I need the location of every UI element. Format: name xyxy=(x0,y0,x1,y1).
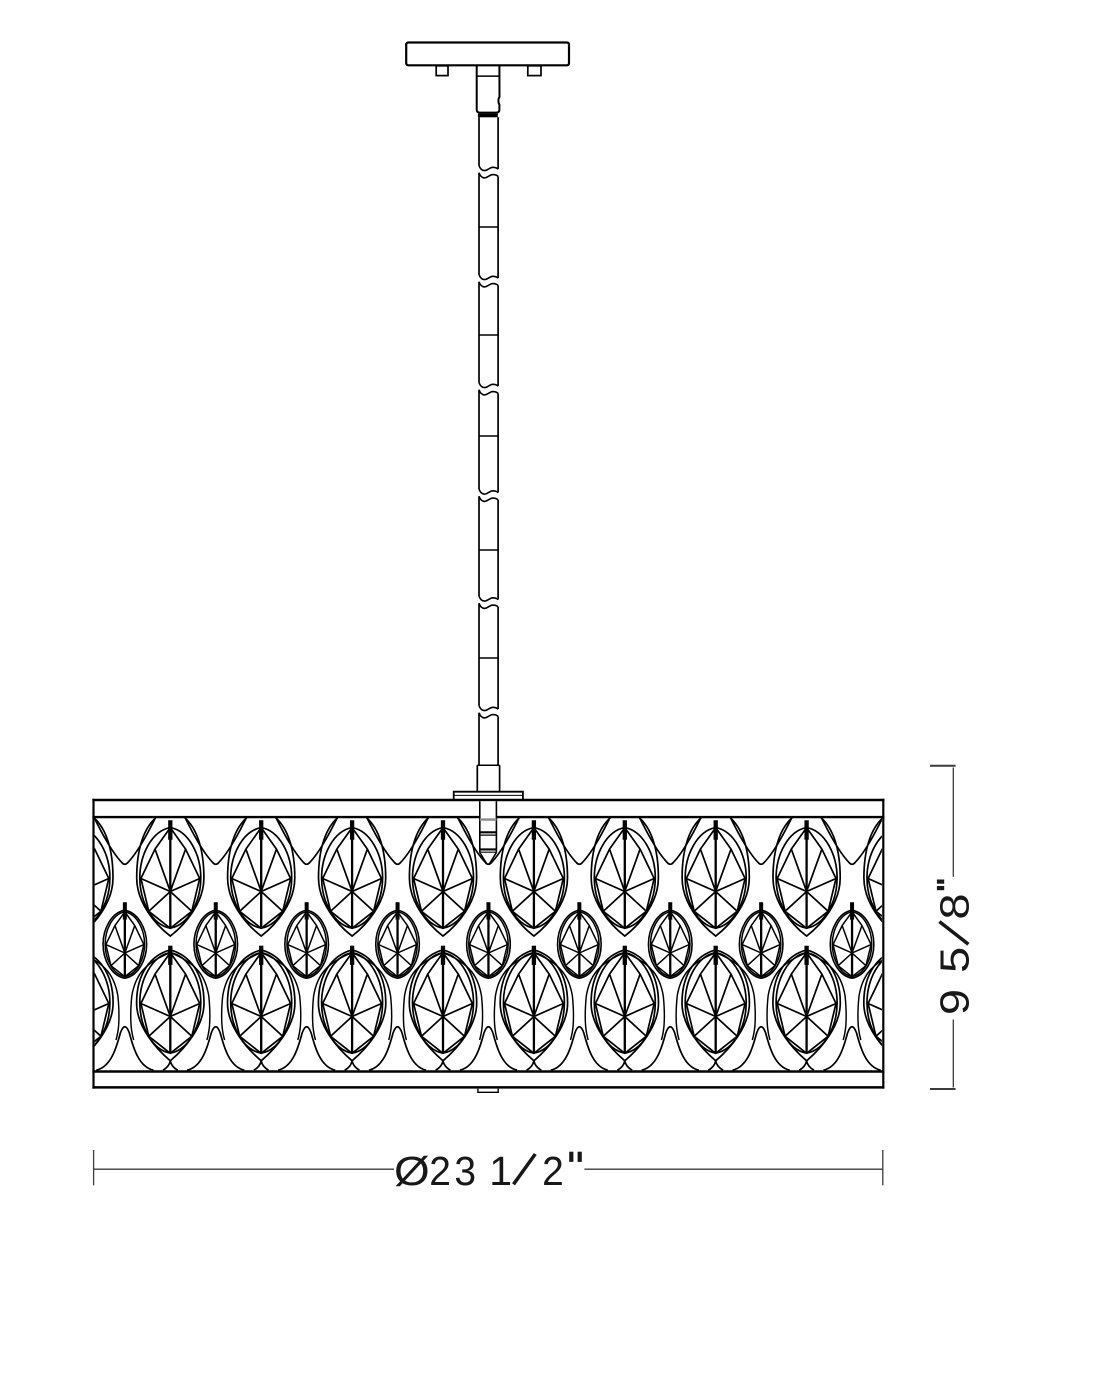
svg-text:5: 5 xyxy=(932,947,977,973)
svg-text:2: 2 xyxy=(542,1149,564,1194)
svg-text:9: 9 xyxy=(932,989,977,1015)
svg-text:Ø: Ø xyxy=(394,1149,430,1194)
svg-text:1: 1 xyxy=(489,1148,512,1194)
svg-text:2: 2 xyxy=(429,1149,451,1194)
svg-text:3: 3 xyxy=(454,1149,476,1194)
svg-text:8: 8 xyxy=(932,893,977,919)
